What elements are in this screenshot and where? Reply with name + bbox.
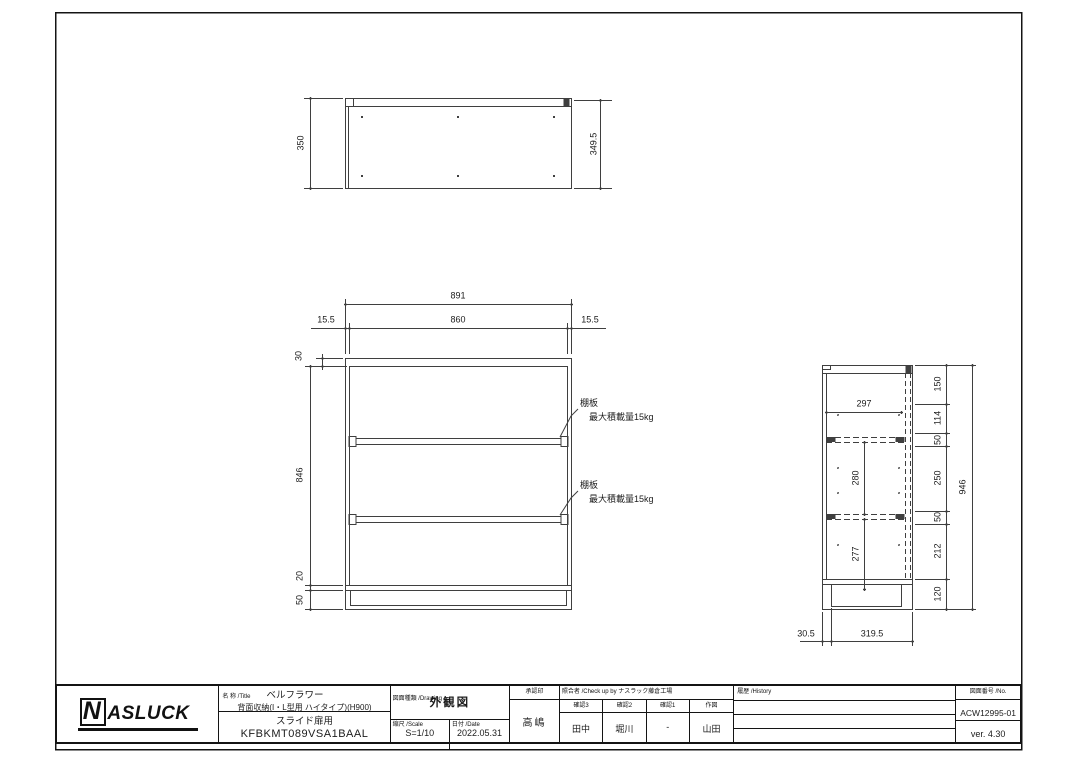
shelf-note-capacity: 最大積載量15kg: [589, 495, 654, 504]
title-block: NASLUCK 名 称 /Title ベルフラワー 背面収納(I・L型用 ハイタ…: [55, 684, 1022, 744]
drawing-type-label: 図面種類 /Drawing: [393, 696, 442, 703]
history-cell: 履歴 /History: [734, 686, 956, 742]
check-col-label: 作図: [690, 700, 733, 713]
drawing-type-area: 図面種類 /Drawing 外観図: [391, 694, 510, 720]
check-col-draw: 作図 山田: [690, 700, 733, 743]
date-value: 2022.05.31: [450, 728, 509, 738]
date-area: 日付 /Date 2022.05.31: [450, 720, 509, 749]
product-name: ベルフラワー: [266, 687, 323, 701]
history-row-divider: [734, 714, 955, 715]
approval-name: 高嶋: [510, 714, 559, 729]
scale-area: 縮尺 /Scale S=1/10: [391, 720, 450, 749]
product-code-area: スライド扉用 KFBKMT089VSA1BAAL: [219, 712, 389, 741]
dim-side-seg-7: 120: [934, 586, 943, 601]
check-col-label: 確認2: [603, 700, 645, 713]
history-label: 履歴 /History: [737, 689, 771, 696]
history-row-divider: [734, 700, 955, 701]
dim-front-edge-left: 15.5: [317, 316, 335, 325]
dim-side-seg-1: 150: [934, 376, 943, 391]
check-cell: 照合者 /Check up by ナスラック藤倉工場 確認3 田中 確認2 堀川…: [560, 686, 734, 742]
dim-side-inner-width: 297: [856, 400, 871, 409]
dim-side-seg-4: 250: [934, 470, 943, 485]
dim-front-inner-width: 860: [450, 316, 465, 325]
drawing-version: ver. 4.30: [956, 721, 1020, 739]
check-col-label: 確認3: [560, 700, 602, 713]
company-logo-cell: NASLUCK: [57, 686, 219, 742]
dim-side-seg-6: 212: [934, 543, 943, 558]
dim-side-seg-2: 114: [934, 411, 943, 425]
dim-side-seg-3: 50: [934, 435, 943, 445]
dim-side-shelf-spacing: 280: [852, 470, 861, 485]
top-view: [304, 97, 612, 190]
dim-side-lower-spacing: 277: [852, 546, 861, 561]
approval-label: 承認印: [510, 686, 559, 700]
check-label: 照合者 /Check up by ナスラック藤倉工場: [560, 686, 733, 700]
drawing-number-cell: 図面番号 /No. ACW12995-01 ver. 4.30: [956, 686, 1020, 742]
front-view: [305, 299, 606, 611]
product-code: KFBKMT089VSA1BAAL: [219, 728, 389, 740]
check-col-value: 堀川: [603, 722, 645, 735]
dim-front-body-height: 846: [296, 467, 305, 482]
dim-side-front-offset: 30.5: [797, 630, 815, 639]
product-description: 背面収納(I・L型用 ハイタイプ)(H900): [222, 702, 386, 713]
nasluck-logo: NASLUCK: [78, 697, 198, 731]
title-label: 名 称 /Title: [222, 694, 250, 701]
dim-topview-depth: 350: [297, 135, 306, 150]
dim-front-top-panel: 30: [295, 351, 304, 361]
dim-front-total-width: 891: [450, 292, 465, 301]
dim-side-seg-5: 50: [934, 512, 943, 522]
scale-value: S=1/10: [391, 728, 449, 738]
check-col-value: 田中: [560, 722, 602, 735]
dim-side-depth: 319.5: [861, 630, 884, 639]
title-cell: 名 称 /Title ベルフラワー 背面収納(I・L型用 ハイタイプ)(H900…: [219, 686, 390, 742]
drawing-number-value: ACW12995-01: [956, 700, 1020, 721]
check-col-3: 確認3 田中: [560, 700, 603, 743]
dim-topview-depth-inner: 349.5: [590, 133, 599, 156]
dim-front-bottom-panel: 20: [296, 571, 305, 581]
drawing-sheet: 350 349.5 891 15.5 860 15.5 30 846 20 50…: [0, 0, 1080, 764]
check-col-value: 山田: [690, 722, 733, 735]
shelf-note-title: 棚板: [580, 481, 598, 490]
product-type: スライド扉用: [219, 713, 389, 727]
scale-label: 縮尺 /Scale: [393, 722, 423, 729]
dim-front-edge-right: 15.5: [581, 316, 599, 325]
product-title-area: 名 称 /Title ベルフラワー 背面収納(I・L型用 ハイタイプ)(H900…: [219, 686, 389, 712]
check-col-label: 確認1: [647, 700, 689, 713]
check-col-value: -: [647, 722, 689, 732]
history-row-divider: [734, 728, 955, 729]
check-col-2: 確認2 堀川: [603, 700, 646, 743]
logo-letter-n: N: [80, 698, 107, 726]
date-label: 日付 /Date: [452, 722, 480, 729]
check-col-1: 確認1 -: [647, 700, 690, 743]
side-view: [800, 364, 976, 646]
logo-wordmark: ASLUCK: [107, 703, 189, 724]
dim-front-base-height: 50: [296, 595, 305, 605]
shelf-note-capacity: 最大積載量15kg: [589, 413, 654, 422]
approval-cell: 承認印 高嶋: [510, 686, 560, 742]
dim-side-total-height: 946: [959, 479, 968, 494]
drawing-type-cell: 図面種類 /Drawing 外観図 縮尺 /Scale S=1/10 日付 /D…: [391, 686, 511, 742]
drawing-linework: [0, 0, 1080, 764]
shelf-note-title: 棚板: [580, 399, 598, 408]
drawing-number-label: 図面番号 /No.: [956, 686, 1020, 700]
sheet-border: [56, 13, 1022, 750]
